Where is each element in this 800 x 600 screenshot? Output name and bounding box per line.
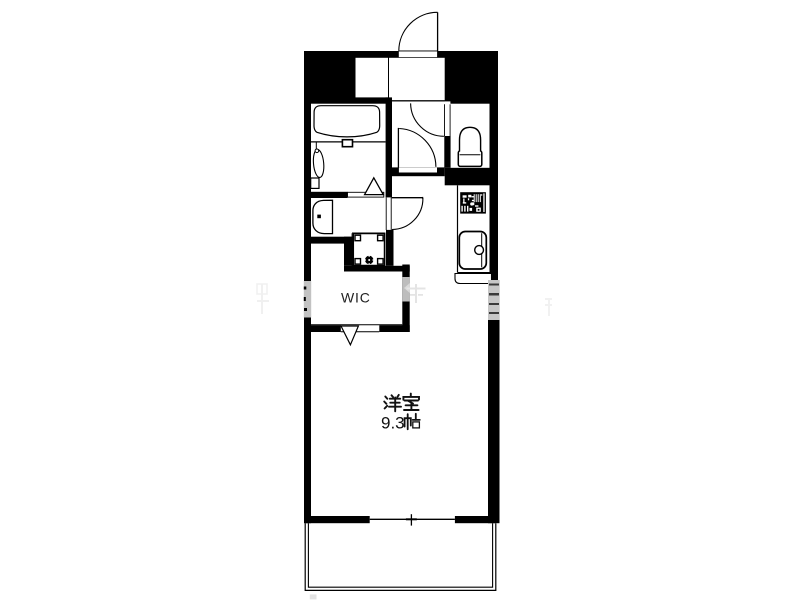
svg-text:WIC: WIC: [341, 290, 371, 306]
svg-text:9.3: 9.3: [381, 414, 405, 433]
